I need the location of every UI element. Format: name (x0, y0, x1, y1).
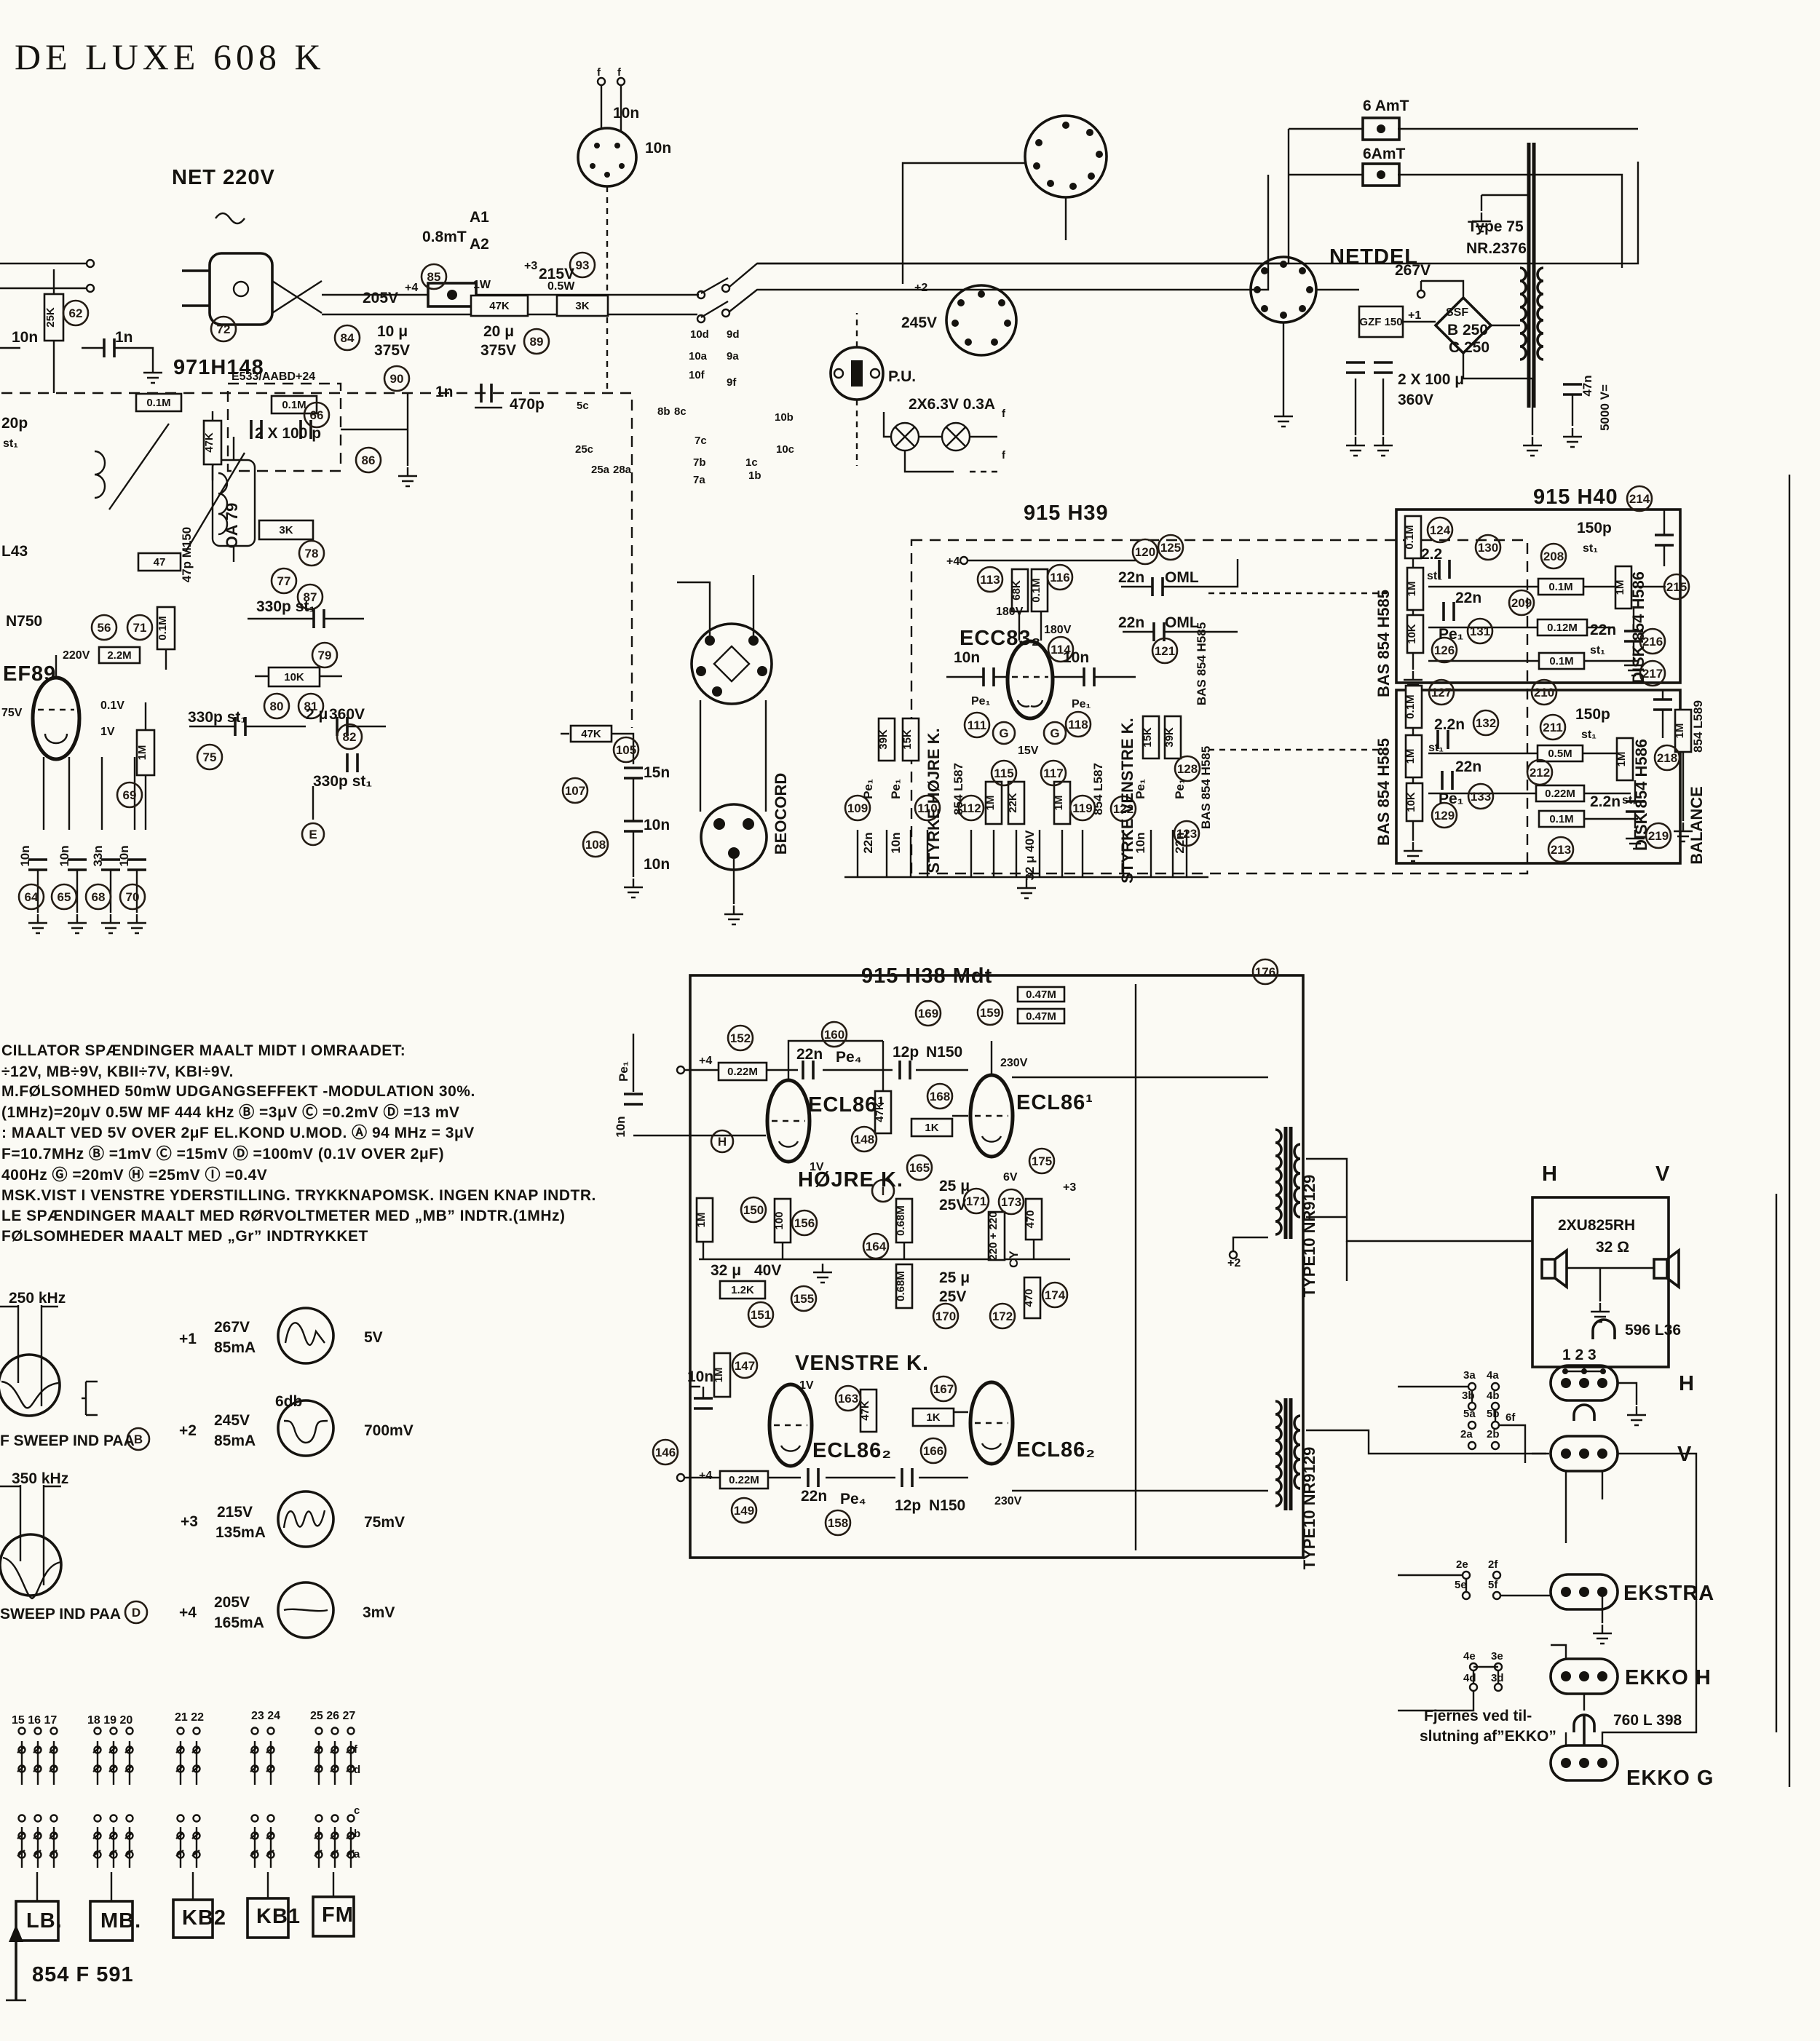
label-amp-venstre: VENSTRE K. (795, 1352, 929, 1375)
resistor-value: 0.1M (282, 399, 306, 411)
ref-refs-c208: 208 (1541, 544, 1566, 568)
label-tuner-c1n: 1n (435, 384, 454, 400)
ref-number: 156 (794, 1216, 815, 1230)
component-power-r47k: 47K (471, 296, 528, 316)
label-tone-balance: BALANCE (1688, 786, 1706, 865)
contact-dot (19, 1728, 25, 1735)
component-tone-r01mE: 0.1M (1539, 811, 1584, 827)
component-preamp-r15kB: 15K (1142, 716, 1159, 758)
component-amp-r1kb: 1K (913, 1408, 954, 1426)
contact-dot (127, 1815, 133, 1822)
ref-number: 119 (1072, 801, 1092, 815)
contact-dot (95, 1815, 101, 1822)
label-mid-c10nb: 10n (613, 105, 639, 122)
ref-refs-c164: 164 (863, 1234, 888, 1259)
resistor-value: 470 (1023, 1288, 1035, 1307)
contact-dot (35, 1815, 41, 1822)
pin-pins-p10c: 10c (776, 443, 794, 456)
resistor-value: 0.1M (1030, 578, 1042, 602)
resistor-value: 0.1M (1549, 655, 1573, 667)
ref-number: 62 (69, 306, 83, 320)
label-tuner-v1: 1V (100, 726, 115, 738)
ref-refs-c111: 111 (965, 713, 989, 737)
contact-dot (316, 1815, 323, 1822)
label-preamp-styrkev: STYRKE VENSTRE K. (1118, 718, 1136, 883)
ref-refs-c169: 169 (916, 1001, 941, 1026)
label-out-htop: H (1542, 1162, 1558, 1186)
label-legend-sweep2: SWEEP IND PAA (0, 1606, 121, 1622)
component-tone-r012m: 0.12M (1538, 619, 1587, 635)
component-tone-r05m: 0.5M (1538, 745, 1583, 761)
pin-pins-f: f (1002, 408, 1006, 420)
ref-letters-e: E (302, 823, 324, 845)
label-amp-c10nb: 10n (687, 1368, 713, 1385)
component-tone-r01mB: 0.1M (1404, 686, 1422, 728)
label-bands-fm: FM (322, 1903, 354, 1927)
pin-pins-p2a: 2a (1460, 1428, 1473, 1440)
label-netdel-v267: 267V (1395, 262, 1431, 279)
ref-letters-g2: G (1044, 722, 1066, 744)
component-tone-r1mB: 1M (1404, 735, 1422, 777)
ref-number: 176 (1255, 965, 1275, 979)
label-tone-pe1b: Pe₁ (1439, 790, 1463, 807)
component-tone-r022m: 0.22M (1536, 785, 1584, 801)
label-tone-module: 915 H40 (1533, 486, 1618, 509)
pin-pins-p5c: 5c (577, 400, 589, 412)
ref-refs-c175: 175 (1029, 1149, 1054, 1173)
ref-refs-c118: 118 (1066, 712, 1091, 737)
resistor-value: 0.1M (1549, 813, 1573, 825)
contact-lines (93, 1741, 132, 1868)
ref-refs-c146: 146 (653, 1440, 678, 1465)
component-tone-r10kB: 10K (1405, 783, 1423, 821)
component-amp-r470b: 470 (1023, 1277, 1040, 1318)
ref-refs-c176: 176 (1253, 959, 1278, 984)
label-tone-disk: DISK 854 H586 (1629, 571, 1647, 683)
ref-number: 209 (1511, 596, 1532, 610)
label-tuner-c15n: 15n (644, 764, 670, 781)
ref-number: 152 (730, 1031, 751, 1045)
ref-refs-c124: 124 (1428, 518, 1452, 542)
label-preamp-styrkeh: STYRKE HØJRE K. (925, 728, 943, 873)
pin-pins-p3a: 3a (1463, 1369, 1476, 1382)
ref-number: 129 (1434, 809, 1455, 823)
component-tuner-r3k: 3K (259, 520, 313, 539)
ref-refs-c125: 125 (1158, 535, 1183, 560)
label-amp-c12p: 12p (893, 1044, 919, 1061)
label-legend-rows-0-tap: +1 (179, 1331, 197, 1347)
component-preamp-r1mB: 1M (1053, 782, 1070, 824)
pin-pins-p9f: 9f (727, 376, 737, 389)
ref-number: 109 (847, 801, 868, 815)
label-preamp-c22nd: 22n (1173, 832, 1187, 853)
ref-number: 211 (1543, 721, 1562, 734)
label-bands-g5: 25 26 27 (310, 1710, 355, 1722)
component-preamp-r22k: 22K (1007, 782, 1024, 824)
resistor-value: 1K (926, 1411, 940, 1424)
label-legend-rows-2-i: 135mA (215, 1524, 266, 1541)
ref-number: 113 (980, 573, 1000, 587)
label-legend-db: 6db (275, 1393, 302, 1410)
ref-number: 158 (828, 1516, 848, 1530)
ref-number: 147 (735, 1359, 755, 1373)
label-preamp-pe1: Pe₁ (971, 695, 991, 708)
ref-number: 71 (133, 621, 147, 635)
contact-dot (51, 1815, 58, 1822)
pin-pins-p7b: 7b (693, 456, 706, 469)
ref-refs-c133: 133 (1468, 784, 1493, 809)
component-preamp-r39kB: 39K (1163, 716, 1181, 758)
label-preamp-pe1d: Pe₁ (889, 779, 903, 799)
label-out-spk: 2XU825RH (1558, 1217, 1635, 1234)
label-tone-bas: BAS 854 H585 (1374, 590, 1393, 697)
label-amp-v230: 230V (1000, 1057, 1028, 1069)
ref-number: 132 (1476, 716, 1496, 730)
component-preamp-r01m: 0.1M (1030, 569, 1048, 611)
component-tone-r1mD: 1M (1615, 738, 1633, 780)
resistor-value: 39K (877, 729, 890, 750)
label-tone-pot: 854 L589 (1691, 700, 1705, 753)
pin-pins-p10d: 10d (690, 328, 709, 341)
label-out-v: V (1677, 1443, 1692, 1466)
label-tone-c22: 2.2 (1421, 546, 1442, 563)
label-notes-lines-5: F=10.7MHz Ⓑ =1mV Ⓒ =15mV Ⓓ =100mV (0.1V … (1, 1145, 444, 1162)
label-preamp-c10nb: 10n (1063, 649, 1089, 666)
label-tone-c22nd: 22n (1590, 622, 1616, 638)
label-amp-p4: +4 (699, 1055, 712, 1067)
label-preamp-v180: 180V (996, 606, 1024, 618)
ref-number: 84 (341, 331, 355, 345)
ref-number: 160 (824, 1028, 844, 1042)
label-preamp-pe1c: Pe₁ (861, 779, 875, 799)
component-tuner-r47kv: 47K (203, 421, 221, 464)
label-legend-rows-2-v: 215V (217, 1504, 253, 1521)
resistor-value: 15K (901, 729, 914, 750)
label-amp-pe4: Pe₄ (836, 1049, 862, 1066)
label-amp-v1: 1V (810, 1161, 824, 1173)
label-tone-st1d: st₁ (1590, 644, 1605, 657)
ref-number: 171 (966, 1194, 986, 1208)
ref-refs-c80: 80 (264, 694, 289, 718)
label-legend-f250: 250 kHz (9, 1290, 66, 1307)
pin-pins-p4b: 4b (1487, 1390, 1500, 1402)
ref-number: 150 (743, 1203, 764, 1217)
resistor-value: 1K (925, 1122, 938, 1134)
label-legend-rows-0-i: 85mA (214, 1339, 256, 1356)
label-netdel-nr: NR.2376 (1466, 240, 1527, 257)
label-amp-tr: TYPE10 NR9129 (1300, 1175, 1318, 1298)
resistor-value: 0.1M (146, 397, 170, 409)
contact-dot (51, 1728, 58, 1735)
component-tone-r01mA: 0.1M (1404, 516, 1421, 558)
label-tuner-l43: L43 (1, 543, 28, 560)
ref-refs-c62: 62 (63, 301, 88, 325)
component-tuner-r2m2: 2.2M (99, 647, 140, 663)
pin-pins-f: f (1002, 449, 1006, 461)
label-tone-c22n: 22n (1455, 590, 1481, 606)
label-tone-pe1: Pe₁ (1439, 626, 1463, 643)
ref-refs-c72: 72 (211, 317, 236, 341)
ref-number: 146 (655, 1446, 676, 1459)
ref-number: 166 (923, 1444, 943, 1458)
ref-number: 169 (918, 1007, 938, 1021)
label-bands-g4: 23 24 (251, 1710, 280, 1722)
label-power-a1: A1 (470, 209, 489, 226)
ref-number: 65 (58, 890, 71, 904)
component-tone-r1mE: 1M (1674, 710, 1691, 752)
resistor-value: 1M (713, 1368, 725, 1383)
label-netdel-v5000: 5000 V= (1598, 384, 1612, 431)
label-out-ekkoh: EKKO H (1625, 1666, 1712, 1689)
pin-pins-lc: c (354, 1804, 360, 1817)
label-out-h: H (1679, 1372, 1695, 1395)
label-amp-v40: 40V (754, 1262, 781, 1279)
component-amp-r022mb: 0.22M (720, 1471, 768, 1489)
ref-number: 124 (1430, 523, 1451, 537)
pin-pins-p25a: 25a (591, 464, 610, 476)
component-tuner-r25k: 25K (44, 294, 63, 341)
pin-pins-p3b: 3b (1462, 1390, 1475, 1402)
label-notes-lines-1: ÷12V, MB÷9V, KBII÷7V, KBI÷9V. (1, 1063, 234, 1080)
label-tuner-c10n: 10n (12, 329, 38, 346)
ref-number: 174 (1045, 1288, 1066, 1302)
label-power-w1: 1W (473, 279, 491, 291)
resistor-value: 10K (1406, 624, 1418, 644)
contact-dot (35, 1728, 41, 1735)
ref-refs-c213: 213 (1548, 837, 1573, 862)
label-tuner-c1nb: 1n (115, 329, 133, 346)
label-legend-rows-3-tap: +4 (179, 1604, 197, 1621)
pin-pins-p10a: 10a (689, 350, 708, 362)
ref-number: 66 (310, 408, 324, 422)
contact-lines (17, 1741, 57, 1868)
label-preamp-c22nc: 22n (861, 832, 875, 853)
label-tone-c2n2: 2.2n (1434, 716, 1465, 733)
label-preamp-v15: 15V (1018, 745, 1039, 757)
label-legend-rows-0-v: 267V (214, 1319, 250, 1336)
pin-pins-f: f (354, 1743, 358, 1756)
resistor-value: 0.47M (1026, 1010, 1056, 1023)
ref-number: 168 (930, 1090, 950, 1103)
label-tuner-c470p: 470p (510, 396, 545, 413)
label-tuner-oa79: OA 79 (223, 503, 241, 549)
label-power-net: NET 220V (172, 166, 275, 189)
label-out-note1: Fjernes ved til- (1424, 1708, 1532, 1724)
pin-pins-p7a: 7a (693, 474, 705, 486)
ref-refs-c214: 214 (1627, 486, 1652, 511)
component-amp-r022m: 0.22M (719, 1063, 767, 1080)
label-notes-lines-3: (1MHz)=20μV 0.5W MF 444 kHz Ⓑ =3μV Ⓒ =0.… (1, 1103, 459, 1121)
label-preamp-basrb: BAS 854 H585 (1199, 746, 1213, 829)
label-notes-lines-4: : MAALT VED 5V OVER 2μF EL.KOND U.MOD. Ⓐ… (1, 1124, 475, 1141)
label-out-note2: slutning af”EKKO” (1420, 1728, 1556, 1745)
ref-number: 111 (968, 718, 987, 732)
ref-refs-c174: 174 (1042, 1283, 1067, 1307)
label-legend-rows-1-i: 85mA (214, 1432, 256, 1449)
label-power-v375: 375V (374, 342, 410, 359)
label-mid-beocord: BEOCORD (772, 773, 790, 855)
ref-refs-c75: 75 (197, 745, 222, 769)
label-amp-module: 915 H38 Mdt (861, 964, 992, 988)
pin-pins-p28a: 28a (613, 464, 632, 476)
resistor-value: 1M (1406, 582, 1418, 597)
label-power-v375b: 375V (480, 342, 516, 359)
label-power-p3: +3 (524, 260, 537, 272)
label-preamp-omlb: OML (1165, 614, 1199, 631)
label-legend-sweep1: F SWEEP IND PAA (0, 1432, 135, 1449)
ref-number: 126 (1434, 643, 1455, 657)
ref-number: G (1050, 726, 1059, 740)
label-tuner-c10na: 10n (18, 845, 32, 866)
ref-number: 215 (1666, 580, 1687, 594)
resistor-value: 1M (695, 1213, 708, 1228)
ref-number: 117 (1043, 766, 1063, 780)
ref-number: 86 (362, 453, 376, 467)
label-amp-c32u: 32 μ (711, 1262, 741, 1279)
label-preamp-v180b: 180V (1044, 624, 1072, 636)
ref-refs-c131: 131 (1468, 619, 1492, 643)
label-preamp-pe1f: Pe₁ (1173, 779, 1187, 799)
text-labels: DE LUXE 608 KNET 220V0.8mTA1A2205V+41W+3… (0, 36, 1714, 1986)
label-notes-lines-7: MSK.VIST I VENSTRE YDERSTILLING. TRYKKNA… (1, 1187, 596, 1204)
ref-refs-c84: 84 (335, 325, 360, 350)
resistor-value: 15K (1142, 727, 1154, 748)
ref-number: 116 (1050, 571, 1069, 584)
resistor-value: 47 (154, 556, 166, 568)
component-power-r3k: 3K (557, 296, 608, 316)
label-amp-n150b: N150 (929, 1497, 965, 1514)
component-tuner-r10k: 10K (269, 667, 320, 686)
ref-refs-c215: 215 (1664, 574, 1689, 599)
resistor-value: 68K (1010, 580, 1023, 601)
label-tuner-c330b: 330p st₁ (188, 709, 247, 726)
resistor-value: 0.68M (895, 1271, 907, 1301)
ref-number: 105 (616, 743, 636, 757)
label-notes-lines-9: FØLSOMHEDER MAALT MED „Gr” INDTRYKKET (1, 1228, 368, 1245)
label-footer-chassis: 854 F 591 (32, 1963, 134, 1986)
ref-refs-c163: 163 (836, 1386, 860, 1411)
pin-pins-p1b: 1b (748, 469, 761, 482)
ref-number: 159 (980, 1006, 1000, 1020)
ref-number: H (718, 1135, 727, 1149)
pin-pins-p2e: 2e (1456, 1558, 1468, 1571)
label-legend-f350: 350 kHz (12, 1470, 68, 1487)
pin-pins-p6f: 6f (1506, 1411, 1516, 1424)
label-tuner-c20p: 20p (1, 415, 28, 432)
ref-refs-c69: 69 (117, 782, 142, 807)
ref-number: 125 (1160, 541, 1181, 555)
label-tuner-e533: E533/AABD+24 (232, 370, 315, 383)
ref-number: 69 (123, 788, 137, 802)
ref-refs-c149: 149 (732, 1498, 756, 1523)
label-tuner-c10nc: 10n (117, 845, 131, 866)
label-amp-p4b: +4 (699, 1470, 712, 1482)
resistor-value: 0.5M (1548, 748, 1572, 760)
label-preamp-c22n: 22n (1118, 569, 1144, 586)
label-tuner-c10nb: 10n (58, 845, 71, 866)
label-amp-tube2: ECL86₂ (812, 1439, 892, 1462)
ref-number: 70 (126, 890, 140, 904)
ref-number: 131 (1470, 625, 1490, 638)
pin-pins-p3d: 3d (1491, 1672, 1504, 1684)
label-tuner-v75: 75V (1, 707, 23, 719)
ref-number: 80 (270, 700, 284, 713)
label-tone-c2n2b: 2.2n (1590, 793, 1621, 810)
label-tone-st1b: st₁ (1428, 742, 1444, 754)
label-mid-pu: P.U. (888, 368, 916, 385)
ref-number: 151 (751, 1308, 771, 1322)
label-tuner-c330: 330p st₁ (256, 598, 315, 615)
ref-refs-c173: 173 (999, 1189, 1024, 1214)
label-amp-c25ub: 25 μ (939, 1269, 970, 1286)
ref-refs-c150: 150 (741, 1197, 766, 1222)
ref-number: 133 (1471, 790, 1491, 804)
label-bands-lb: LB. (26, 1909, 63, 1933)
resistor-value: 47K (859, 1400, 871, 1421)
label-netdel-type: Type 75 (1468, 218, 1524, 235)
label-tone-st1e: st₁ (1581, 729, 1597, 741)
resistor-value: 0.22M (727, 1066, 758, 1078)
resistor-value: 25K (44, 307, 57, 328)
label-tuner-st1: st₁ (3, 437, 18, 450)
label-tone-c22nc: 22n (1455, 758, 1481, 775)
ref-refs-c166: 166 (921, 1438, 946, 1463)
component-tuner-r47: 47 (138, 553, 181, 571)
resistor-value: 2.2M (107, 649, 131, 662)
pin-pins-lb2: b (354, 1828, 360, 1840)
label-preamp-c32u: 32 μ 40V (1023, 830, 1037, 881)
ref-refs-c168: 168 (927, 1084, 952, 1109)
contact-dot (178, 1815, 184, 1822)
ref-refs-c155: 155 (791, 1286, 816, 1311)
label-netdel-b250: B 250 (1447, 322, 1488, 338)
contact-dot (316, 1728, 323, 1735)
ref-refs-c70: 70 (120, 884, 145, 909)
resistor-value: 3K (279, 524, 293, 536)
label-preamp-potr: 854 L587 (1091, 763, 1105, 815)
label-preamp-p4: +4 (946, 555, 960, 568)
label-preamp-basr: BAS 854 H585 (1195, 622, 1208, 705)
component-tuner-r1m: 1M (136, 730, 154, 775)
ref-refs-c156: 156 (792, 1210, 817, 1235)
resistor-value: 0.22M (1545, 788, 1575, 800)
resistor-value: 1M (1674, 724, 1686, 739)
contact-dot (332, 1815, 339, 1822)
label-legend-rows-1-sig: 700mV (364, 1422, 414, 1439)
label-notes-lines-6: 400Hz Ⓖ =20mV Ⓗ =25mV Ⓘ =0.4V (1, 1166, 267, 1184)
pin-pins-p10f: 10f (689, 369, 705, 381)
ref-refs-c105: 105 (614, 737, 638, 762)
label-tuner-c2u: 2 μ (306, 706, 328, 723)
label-tuner-n750: N750 (6, 613, 42, 630)
resistor-value: 470 (1024, 1210, 1037, 1228)
ref-refs-c115: 115 (992, 761, 1016, 785)
ref-number: 85 (427, 270, 441, 284)
ref-number: 127 (1431, 686, 1452, 700)
ref-letters-g1: G (993, 722, 1015, 744)
label-legend-rows-2-sig: 75mV (364, 1514, 405, 1531)
label-notes-lines-2: M.FØLSOMHED 50mW UDGANGSEFFEKT -MODULATI… (1, 1083, 475, 1100)
label-amp-c22nb: 22n (801, 1488, 827, 1505)
resistor-value: 1M (984, 796, 997, 811)
contact-dot (178, 1728, 184, 1735)
label-amp-n150: N150 (926, 1044, 962, 1061)
component-amp-r047m: 0.47M (1018, 987, 1064, 1002)
label-tuner-c33n: 33n (91, 845, 105, 866)
ref-refs-c128: 128 (1175, 756, 1200, 781)
component-amp-r100: 100 (773, 1199, 791, 1243)
component-tone-r01mC: 0.1M (1538, 579, 1583, 595)
